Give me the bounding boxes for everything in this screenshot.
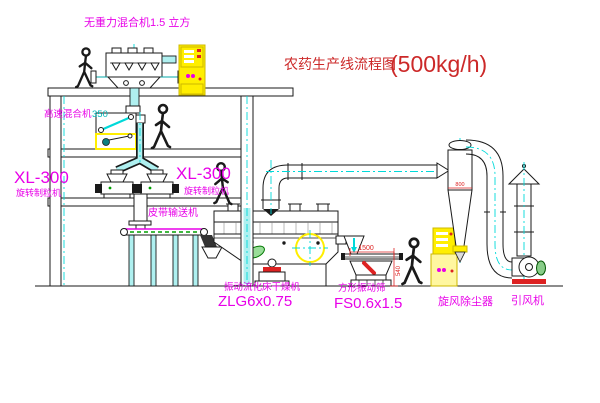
diagram-capacity: (500kg/h) [390,51,487,77]
label-screen-name: 方形振动筛 [338,282,386,294]
worker-floor-2 [152,105,170,148]
fan-base [512,279,546,284]
duct-arrow [437,163,449,178]
label-high-speed-mixer-size: 350 [92,109,108,120]
outlet-port [136,115,145,123]
granulator-hopper [147,174,167,182]
dryer-mount-pad [263,267,281,272]
indicator-dot-red [199,78,202,81]
indicator-dot-red [450,233,453,236]
granulator-motor [95,184,102,193]
label-belt-conveyor: 皮带输送机 [148,206,198,219]
label-high-speed-mixer: 高速混合机 [44,108,92,120]
mixer-outlet-stub [162,56,176,63]
motor-pulley [103,139,110,146]
dryer-feed-funnel [202,247,222,258]
belt-conveyor [121,229,218,287]
belt-pulley [121,229,128,236]
outlet-pipe [466,140,512,278]
indicator-dot-magenta [186,74,190,78]
worker-ground [402,239,421,284]
fluid-bed-dryer [202,204,346,286]
mixer-discharge-pipe [130,88,139,106]
mixer-hopper [108,77,160,88]
granulator-body [101,182,133,194]
exhaust-duct [261,160,449,216]
label-dryer-name: 振动流化床干燥机 [224,281,301,293]
dim-screen-1500: 1500 [358,245,374,252]
floor-slab-2 [48,149,253,157]
label-granulator-right-name: 旋转制粒机 [184,185,229,196]
label-screen-model: FS0.6x1.5 [334,295,402,312]
worker-top-floor [76,48,92,87]
control-cabinet-top [179,45,205,95]
screen-deck [344,254,400,259]
cyclone-cap [449,141,471,150]
label-cyclone: 旋风除尘器 [438,294,493,308]
floor-slab-3 [48,198,253,206]
fan-motor [537,261,546,275]
dryer-flange-band [214,222,338,234]
granulator-motor [135,184,142,193]
vibrating-screen [341,236,403,286]
granulator-body [141,182,173,194]
conveyor-leg [129,235,134,286]
cyclone-discharge-flange [453,246,467,252]
pipe-centerline [466,147,512,270]
control-cabinet-right [431,228,457,286]
label-granulator-left-model: XL-300 [14,168,69,187]
induced-draft-fan [512,257,546,284]
label-fan: 引风机 [511,293,544,307]
dim-screen-540: 540 [396,265,402,276]
dryer-plenum [214,211,338,222]
indicator-dot-magenta [437,268,441,272]
label-dryer-model: ZLG6x0.75 [218,293,292,310]
feed-stub [126,106,140,113]
label-granulator-right-model: XL-300 [176,164,231,183]
label-granulator-left-name: 旋转制粒机 [16,187,61,198]
gravity-free-mixer [91,44,183,110]
granulator-left [95,170,139,198]
column-right [241,96,253,286]
diagram-title: 农药生产线流程图 [284,56,396,72]
dim-cyclone-800: 800 [455,182,464,188]
process-flow-diagram: 农药生产线流程图 (500kg/h) 无重力混合机1.5 立方 高速混合机 35… [0,0,600,403]
flow-diagram-canvas: 农药生产线流程图 (500kg/h) 无重力混合机1.5 立方 高速混合机 35… [0,0,600,403]
label-gravity-mixer: 无重力混合机1.5 立方 [84,15,190,29]
granulator-hopper [107,174,127,182]
floor-slab-top [48,88,293,96]
